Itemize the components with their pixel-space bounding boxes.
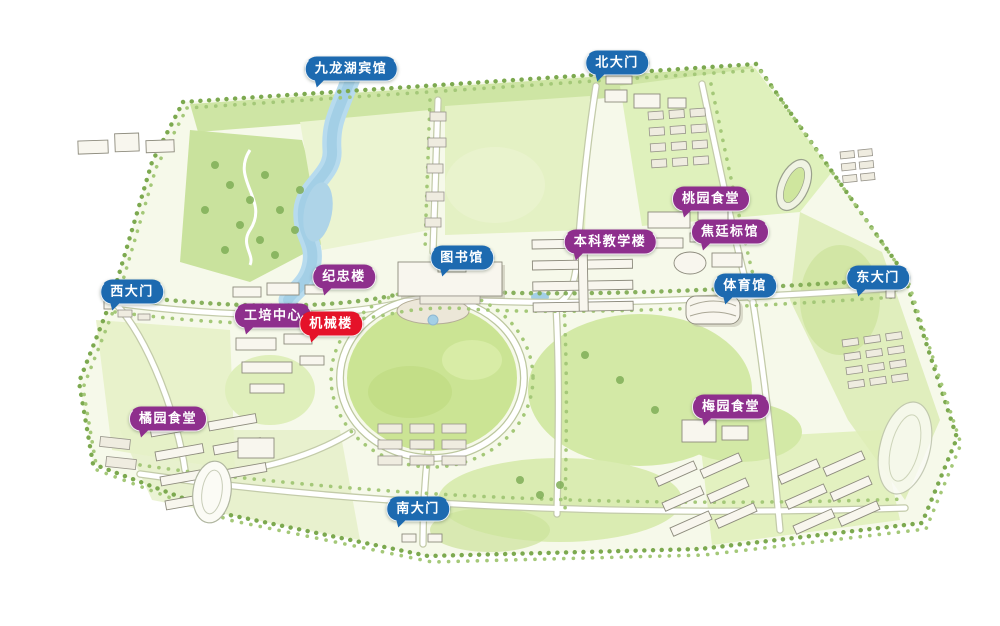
label-meiyuan-canteen[interactable]: 梅园食堂 <box>692 395 770 420</box>
campus-map-page: 九龙湖宾馆 北大门 桃园食堂 焦廷标馆 本科教学楼 图书馆 纪忠楼 体育馆 东大… <box>0 0 1000 626</box>
label-south-gate[interactable]: 南大门 <box>386 497 450 522</box>
label-jizhong-building[interactable]: 纪忠楼 <box>312 265 376 290</box>
label-mechanical-building[interactable]: 机械楼 <box>299 312 363 337</box>
label-jiaotingbiao-hall[interactable]: 焦廷标馆 <box>691 220 769 245</box>
label-taoyuan-canteen[interactable]: 桃园食堂 <box>672 187 750 212</box>
label-library[interactable]: 图书馆 <box>430 246 494 271</box>
label-east-gate[interactable]: 东大门 <box>846 266 910 291</box>
label-undergrad-teaching-building[interactable]: 本科教学楼 <box>564 230 657 255</box>
gymnasium-building <box>686 296 743 327</box>
label-north-gate[interactable]: 北大门 <box>585 51 649 76</box>
label-gymnasium[interactable]: 体育馆 <box>713 274 777 299</box>
label-juyuan-canteen[interactable]: 橘园食堂 <box>129 407 207 432</box>
central-lawn <box>340 298 524 458</box>
campus-map-illustration <box>0 0 1000 626</box>
label-west-gate[interactable]: 西大门 <box>100 280 164 305</box>
label-jiulonghu-hotel[interactable]: 九龙湖宾馆 <box>305 57 398 82</box>
